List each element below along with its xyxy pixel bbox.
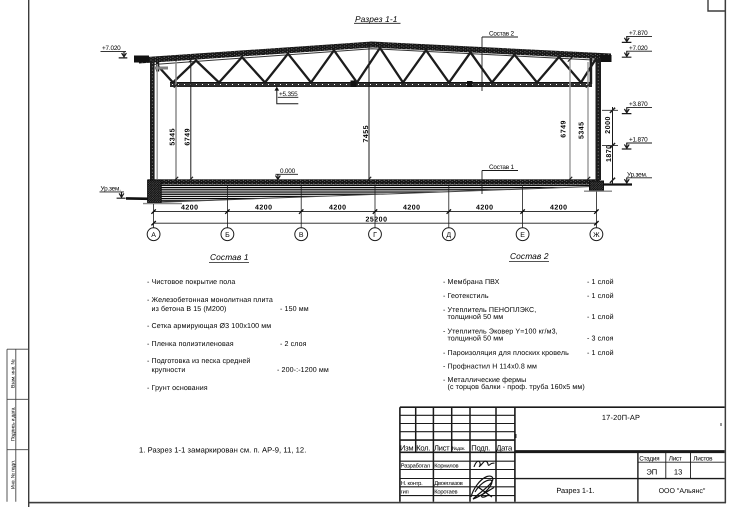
svg-text:- 1 слой: - 1 слой (587, 278, 614, 286)
svg-text:Подп.: Подп. (471, 444, 490, 453)
svg-text:- 200-:-1200 мм: - 200-:-1200 мм (277, 366, 329, 374)
svg-text:Состав 1: Состав 1 (489, 164, 515, 171)
svg-text:Подпись и дата.: Подпись и дата. (11, 407, 17, 441)
svg-text:+7.020: +7.020 (102, 45, 121, 52)
svg-text:5345: 5345 (169, 128, 176, 146)
svg-text:гип: гип (401, 489, 409, 495)
svg-text:крупности: крупности (152, 366, 186, 374)
svg-text:- 150 мм: - 150 мм (280, 305, 309, 313)
svg-text:1870: 1870 (606, 144, 613, 162)
svg-text:ООО "Альянс": ООО "Альянс" (659, 488, 706, 495)
svg-text:6749: 6749 (185, 128, 192, 146)
svg-text:Листов: Листов (693, 455, 713, 462)
svg-text:из бетона В 15 (М200): из бетона В 15 (М200) (152, 305, 227, 313)
svg-text:Ур.зем.: Ур.зем. (101, 185, 122, 192)
svg-text:Лист: Лист (434, 444, 450, 453)
svg-text:- Пленка полиэтиленовая: - Пленка полиэтиленовая (147, 340, 234, 348)
svg-text:- Подготовка из песка средней: - Подготовка из песка средней (147, 357, 250, 365)
svg-text:- Чистовое покрытие пола: - Чистовое покрытие пола (147, 278, 235, 286)
svg-text:Б: Б (225, 232, 230, 239)
svg-text:2000: 2000 (605, 116, 612, 134)
svg-text:17-20П-АР: 17-20П-АР (602, 413, 640, 422)
svg-text:А: А (151, 232, 156, 239)
svg-text:Состав 2: Состав 2 (510, 251, 549, 261)
svg-text:4200: 4200 (403, 204, 421, 211)
svg-text:Дата: Дата (496, 444, 513, 453)
svg-text:В: В (299, 232, 304, 239)
svg-text:Разработал: Разработал (401, 462, 430, 469)
svg-text:№док.: №док. (452, 446, 465, 452)
svg-text:Стадия: Стадия (639, 455, 660, 462)
svg-text:- 1 слой: - 1 слой (587, 349, 614, 357)
svg-text:- Профнастил Н 114х0.8 мм: - Профнастил Н 114х0.8 мм (443, 363, 537, 371)
svg-text:- 3 слоя: - 3 слоя (587, 335, 614, 343)
svg-text:1. Разрез 1-1 замаркирован см.: 1. Разрез 1-1 замаркирован см. п. АР-9, … (139, 445, 306, 454)
svg-text:6749: 6749 (561, 120, 568, 138)
svg-text:4200: 4200 (550, 204, 568, 211)
svg-text:13: 13 (674, 467, 682, 476)
svg-text:Г: Г (373, 232, 377, 239)
svg-text:7455: 7455 (363, 125, 370, 143)
svg-text:Взам. инв. №: Взам. инв. № (11, 359, 17, 388)
svg-text:- 1 слой: - 1 слой (587, 313, 614, 321)
svg-text:- Железобетонная монолитная п: - Железобетонная монолитная плита (147, 296, 273, 304)
svg-text:- Пароизоляция для плоских кро: - Пароизоляция для плоских кровель (443, 349, 569, 357)
svg-text:4200: 4200 (476, 204, 494, 211)
svg-text:Разрез 1-1.: Разрез 1-1. (556, 486, 594, 495)
svg-text:4200: 4200 (255, 204, 273, 211)
svg-text:- Сетка армирующая Ø3 100х100: - Сетка армирующая Ø3 100х100 мм (147, 322, 271, 330)
svg-text:- Геотекстиль: - Геотекстиль (443, 292, 489, 300)
svg-text:Состав 1: Состав 1 (210, 252, 249, 262)
svg-text:4200: 4200 (329, 204, 347, 211)
svg-text:Лист: Лист (669, 455, 682, 462)
svg-text:толщиной 50 мм: толщиной 50 мм (448, 335, 504, 343)
svg-text:- 1 слой: - 1 слой (587, 292, 614, 300)
svg-text:25200: 25200 (366, 216, 388, 223)
svg-text:Корнилов: Корнилов (434, 463, 458, 469)
svg-text:толщиной 50 мм: толщиной 50 мм (448, 313, 504, 321)
svg-text:+3.870: +3.870 (629, 101, 648, 108)
svg-text:Изм: Изм (400, 444, 413, 453)
svg-text:Коротаев: Коротаев (434, 489, 457, 495)
svg-text:Кол.: Кол. (416, 444, 430, 453)
svg-text:ЭП: ЭП (646, 467, 657, 476)
svg-text:Инв. № подл.: Инв. № подл. (11, 460, 17, 489)
svg-text:Ур.зем.: Ур.зем. (627, 171, 648, 178)
svg-text:- Грунт основания: - Грунт основания (147, 384, 208, 392)
svg-text:Ж: Ж (593, 232, 600, 239)
svg-text:4200: 4200 (181, 204, 199, 211)
svg-text:5345: 5345 (578, 121, 585, 139)
svg-text:(с торцов балки - проф. труба: (с торцов балки - проф. труба 160х5 мм) (448, 383, 585, 391)
svg-text:Д: Д (446, 232, 451, 239)
svg-text:- Мембрана ПВХ: - Мембрана ПВХ (443, 278, 500, 286)
svg-text:Разрез 1-1: Разрез 1-1 (355, 14, 398, 24)
svg-text:Н. контр.: Н. контр. (401, 481, 423, 487)
svg-text:Двоеглазов: Двоеглазов (434, 481, 462, 487)
svg-text:Е: Е (520, 232, 525, 239)
svg-text:- 2 слоя: - 2 слоя (280, 340, 307, 348)
svg-text:Состав 2: Состав 2 (489, 31, 515, 38)
